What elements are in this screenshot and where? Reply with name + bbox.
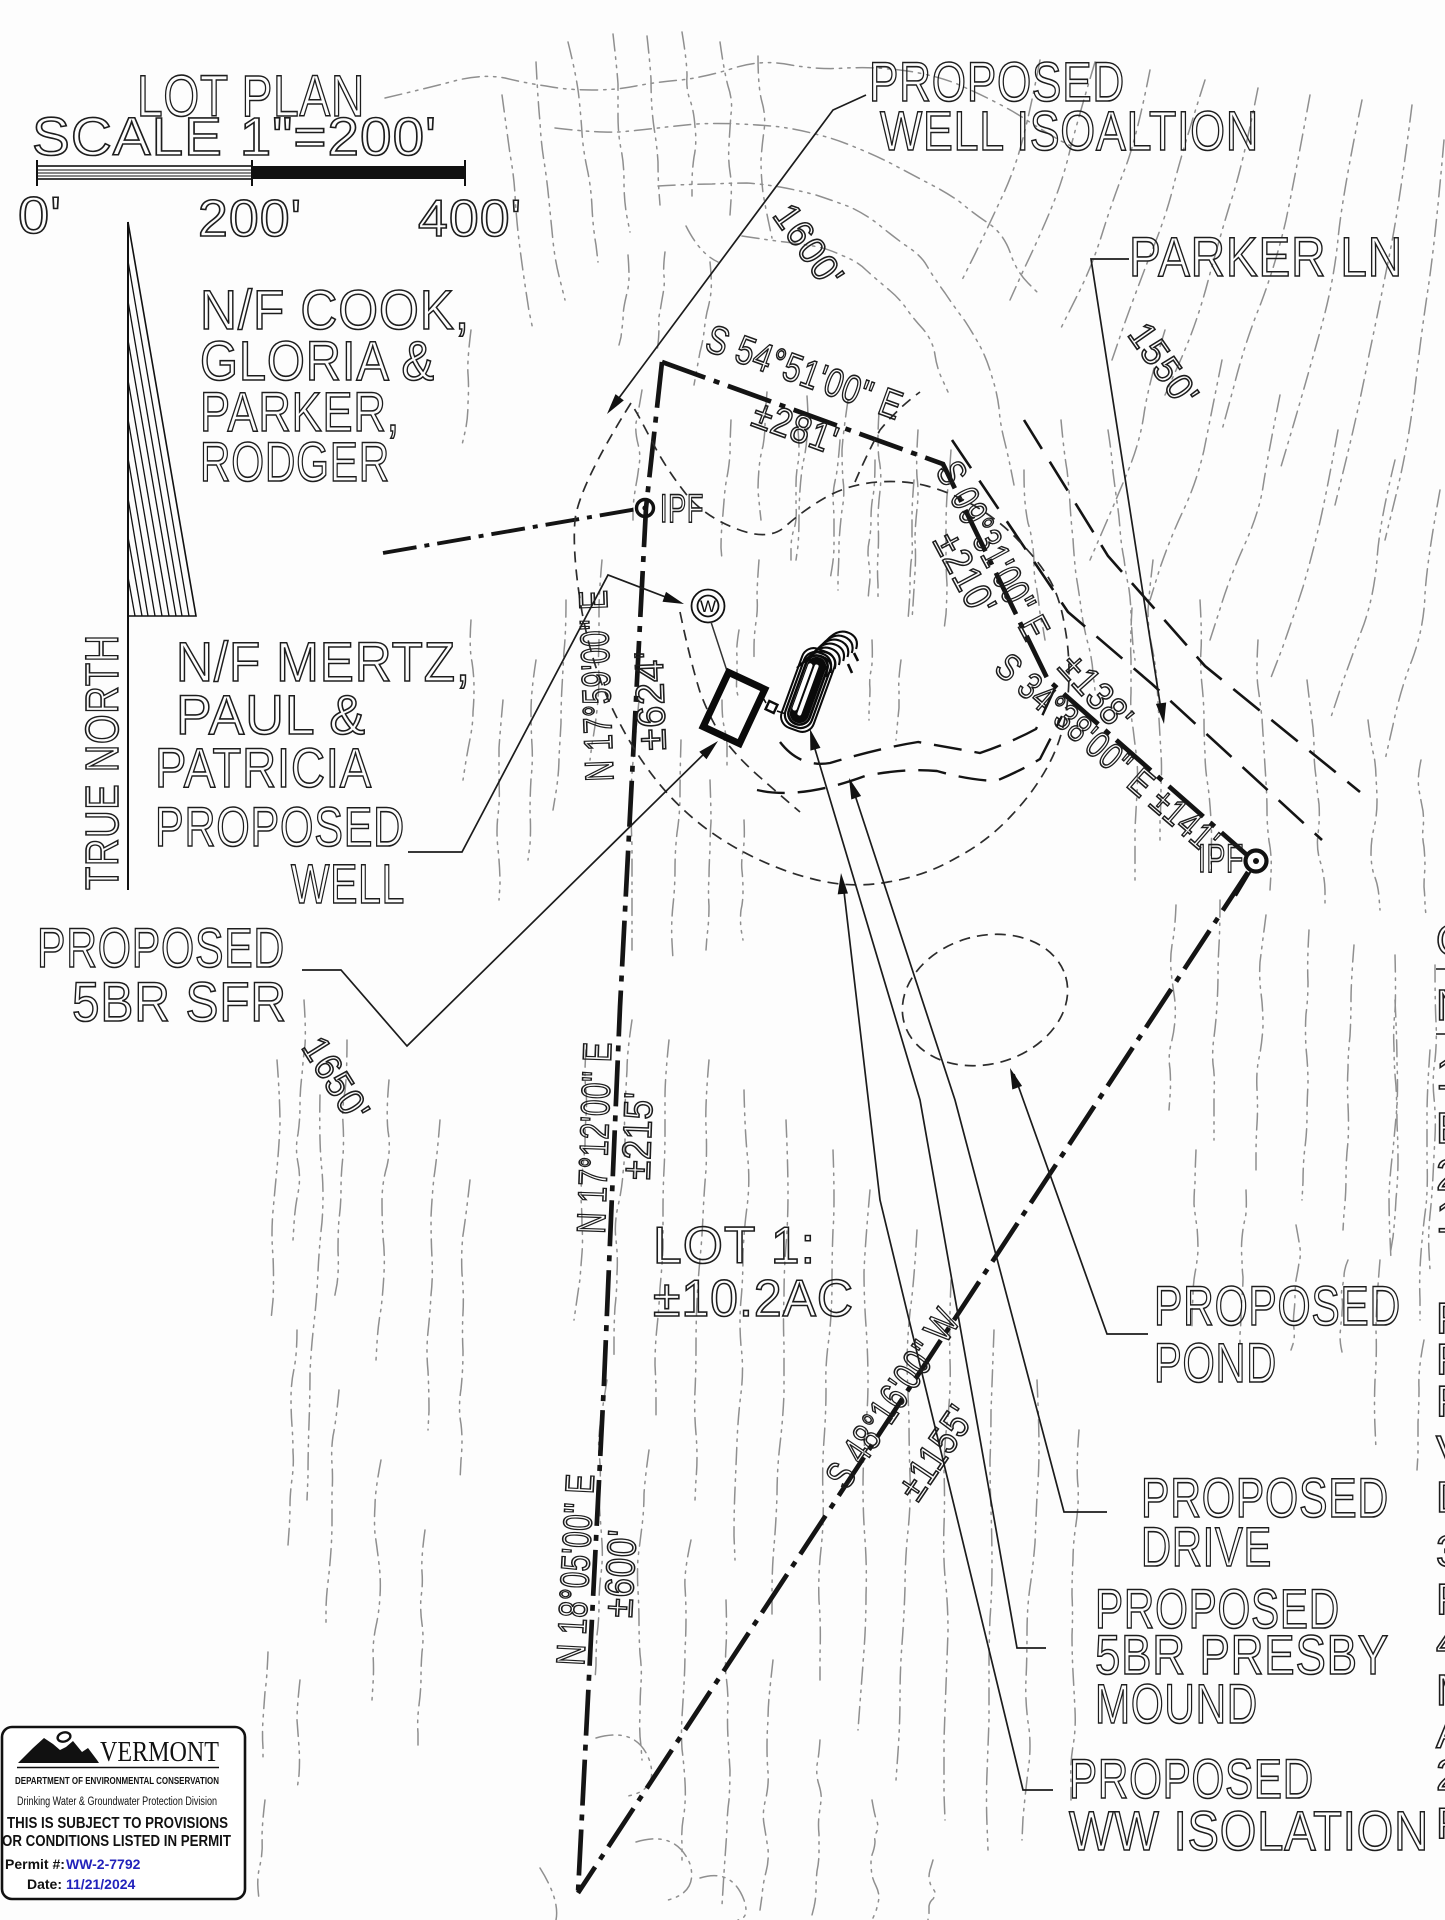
svg-text:0': 0' bbox=[18, 187, 62, 245]
svg-text:1: 1 bbox=[1436, 1050, 1445, 1099]
svg-text:Date:: Date: bbox=[27, 1876, 62, 1892]
svg-text:1: 1 bbox=[1436, 1193, 1445, 1242]
svg-text:4: 4 bbox=[1436, 1619, 1445, 1668]
svg-text:M: M bbox=[1436, 1666, 1445, 1715]
svg-text:2: 2 bbox=[1436, 1751, 1445, 1800]
svg-text:WELL ISOALTION: WELL ISOALTION bbox=[880, 99, 1259, 162]
svg-text:F: F bbox=[1436, 1377, 1445, 1426]
svg-text:±600': ±600' bbox=[597, 1528, 646, 1618]
svg-text:F: F bbox=[1436, 1575, 1445, 1624]
svg-text:THIS IS SUBJECT TO PROVISIONS: THIS IS SUBJECT TO PROVISIONS bbox=[7, 1815, 228, 1832]
svg-text:PROPOSED: PROPOSED bbox=[1154, 1274, 1401, 1337]
svg-text:11/21/2024: 11/21/2024 bbox=[66, 1876, 136, 1892]
svg-text:DRIVE: DRIVE bbox=[1141, 1515, 1272, 1578]
svg-text:PATRICIA: PATRICIA bbox=[155, 736, 372, 799]
svg-text:IPF: IPF bbox=[660, 487, 704, 531]
svg-text:WW ISOLATION: WW ISOLATION bbox=[1069, 1799, 1429, 1862]
svg-text:WW-2-7792: WW-2-7792 bbox=[66, 1856, 141, 1872]
svg-text:MOUND: MOUND bbox=[1095, 1672, 1258, 1735]
svg-text:W: W bbox=[700, 597, 716, 616]
svg-text:TRUE NORTH: TRUE NORTH bbox=[76, 634, 128, 890]
svg-text:±215': ±215' bbox=[614, 1091, 661, 1180]
svg-text:N 17°12'00" E: N 17°12'00" E bbox=[570, 1041, 621, 1234]
svg-text:±10.2AC: ±10.2AC bbox=[653, 1270, 854, 1328]
svg-text:OR CONDITIONS LISTED IN PERMIT: OR CONDITIONS LISTED IN PERMIT bbox=[2, 1833, 231, 1850]
svg-text:LOT 1:: LOT 1: bbox=[653, 1217, 816, 1275]
svg-text:3: 3 bbox=[1436, 1527, 1445, 1576]
svg-text:PROPOSED: PROPOSED bbox=[155, 795, 405, 858]
svg-text:V: V bbox=[1436, 1427, 1445, 1476]
svg-text:D: D bbox=[1436, 1473, 1445, 1522]
svg-text:Permit #:: Permit #: bbox=[5, 1856, 65, 1872]
svg-text:WELL: WELL bbox=[291, 852, 405, 915]
svg-text:VERMONT: VERMONT bbox=[100, 1737, 219, 1768]
svg-text:SCALE 1"=200': SCALE 1"=200' bbox=[32, 107, 437, 167]
svg-text:400': 400' bbox=[418, 190, 522, 248]
svg-text:P: P bbox=[1436, 1799, 1445, 1848]
svg-text:N: N bbox=[1436, 981, 1445, 1030]
svg-text:POND: POND bbox=[1154, 1331, 1277, 1394]
svg-text:E: E bbox=[1436, 1104, 1445, 1153]
svg-text:±624': ±624' bbox=[627, 650, 674, 751]
svg-text:DEPARTMENT OF ENVIRONMENTAL CO: DEPARTMENT OF ENVIRONMENTAL CONSERVATION bbox=[15, 1775, 219, 1787]
svg-text:O: O bbox=[1436, 916, 1445, 965]
svg-text:PARKER LN: PARKER LN bbox=[1129, 225, 1403, 288]
svg-text:Drinking Water & Groundwater P: Drinking Water & Groundwater Protection … bbox=[17, 1796, 217, 1808]
svg-text:RODGER: RODGER bbox=[200, 430, 390, 493]
svg-text:200': 200' bbox=[198, 190, 302, 248]
svg-text:N 17°59'00" E: N 17°59'00" E bbox=[572, 589, 623, 782]
svg-text:5BR SFR: 5BR SFR bbox=[72, 970, 287, 1033]
